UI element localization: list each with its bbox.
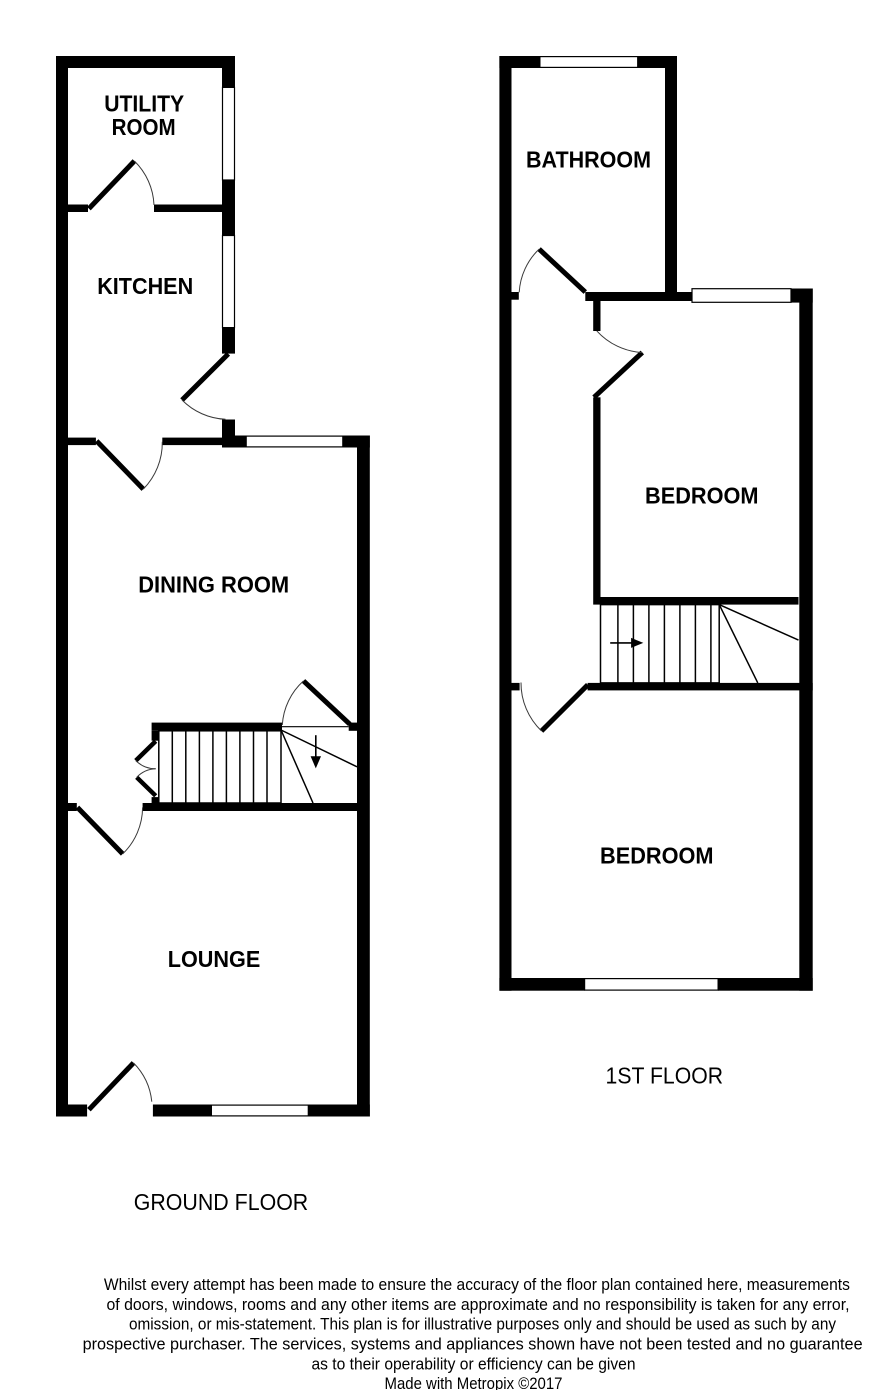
svg-text:BEDROOM: BEDROOM: [645, 483, 759, 509]
svg-text:GROUND FLOOR: GROUND FLOOR: [134, 1189, 309, 1215]
svg-text:BEDROOM: BEDROOM: [600, 843, 714, 869]
svg-text:omission, or mis-statement. Th: omission, or mis-statement. This plan is…: [129, 1315, 836, 1334]
svg-text:ROOM: ROOM: [112, 114, 176, 140]
svg-text:prospective purchaser. The ser: prospective purchaser. The services, sys…: [83, 1335, 863, 1354]
svg-text:as to their operability or eff: as to their operability or efficiency ca…: [312, 1354, 636, 1373]
svg-text:of doors, windows, rooms and a: of doors, windows, rooms and any other i…: [107, 1295, 850, 1314]
svg-text:BATHROOM: BATHROOM: [526, 146, 651, 172]
svg-text:Whilst every attempt has been: Whilst every attempt has been made to en…: [104, 1275, 850, 1294]
svg-text:UTILITY: UTILITY: [104, 91, 184, 117]
svg-text:1ST FLOOR: 1ST FLOOR: [606, 1063, 724, 1089]
svg-text:KITCHEN: KITCHEN: [97, 273, 193, 299]
svg-text:LOUNGE: LOUNGE: [168, 946, 261, 972]
svg-text:Made with Metropix ©2017: Made with Metropix ©2017: [385, 1374, 563, 1390]
svg-text:DINING ROOM: DINING ROOM: [138, 572, 289, 598]
